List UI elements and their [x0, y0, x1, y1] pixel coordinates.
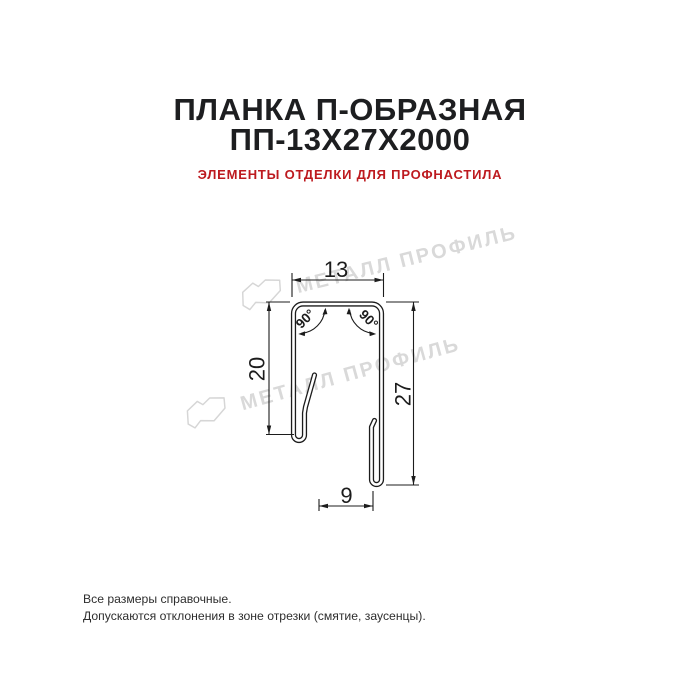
- arrow-right-icon: [369, 331, 376, 336]
- dimension-value-right: 27: [391, 382, 416, 406]
- dimension-lines: [266, 302, 294, 435]
- footnotes: Все размеры справочные. Допускаются откл…: [83, 591, 426, 624]
- dimension-right-height: 27: [386, 302, 419, 485]
- product-spec-image: МЕТАЛЛ ПРОФИЛЬ МЕТАЛЛ ПРОФИЛЬ ПЛАНКА П-О…: [0, 0, 700, 700]
- arrow-left-icon: [292, 278, 301, 282]
- angle-annotation-top-left: 90°: [293, 306, 328, 336]
- arrow-right-icon: [364, 504, 373, 508]
- dimension-top-width: 13: [292, 257, 384, 297]
- footnote-line-1: Все размеры справочные.: [83, 591, 426, 608]
- dimension-value-left: 20: [245, 357, 270, 381]
- footnote-line-2: Допускаются отклонения в зоне отрезки (с…: [83, 608, 426, 625]
- arrow-left-icon: [298, 331, 305, 336]
- dimension-bottom-width: 9: [319, 483, 373, 511]
- arrow-down-icon: [411, 476, 415, 485]
- arrow-up-icon: [267, 302, 271, 311]
- arrow-up-icon: [323, 308, 328, 315]
- angle-annotation-top-right: 90°: [347, 307, 382, 336]
- dimension-value-top: 13: [324, 257, 348, 282]
- dimension-value-bottom: 9: [340, 483, 352, 508]
- dimension-left-height: 20: [245, 302, 295, 435]
- profile-sheet-outline: [294, 304, 382, 485]
- arrow-left-icon: [319, 504, 328, 508]
- arrow-right-icon: [375, 278, 384, 282]
- profile-cross-section: [294, 304, 382, 485]
- arrow-down-icon: [267, 426, 271, 435]
- arrow-up-icon: [347, 308, 352, 315]
- arrow-up-icon: [411, 302, 415, 311]
